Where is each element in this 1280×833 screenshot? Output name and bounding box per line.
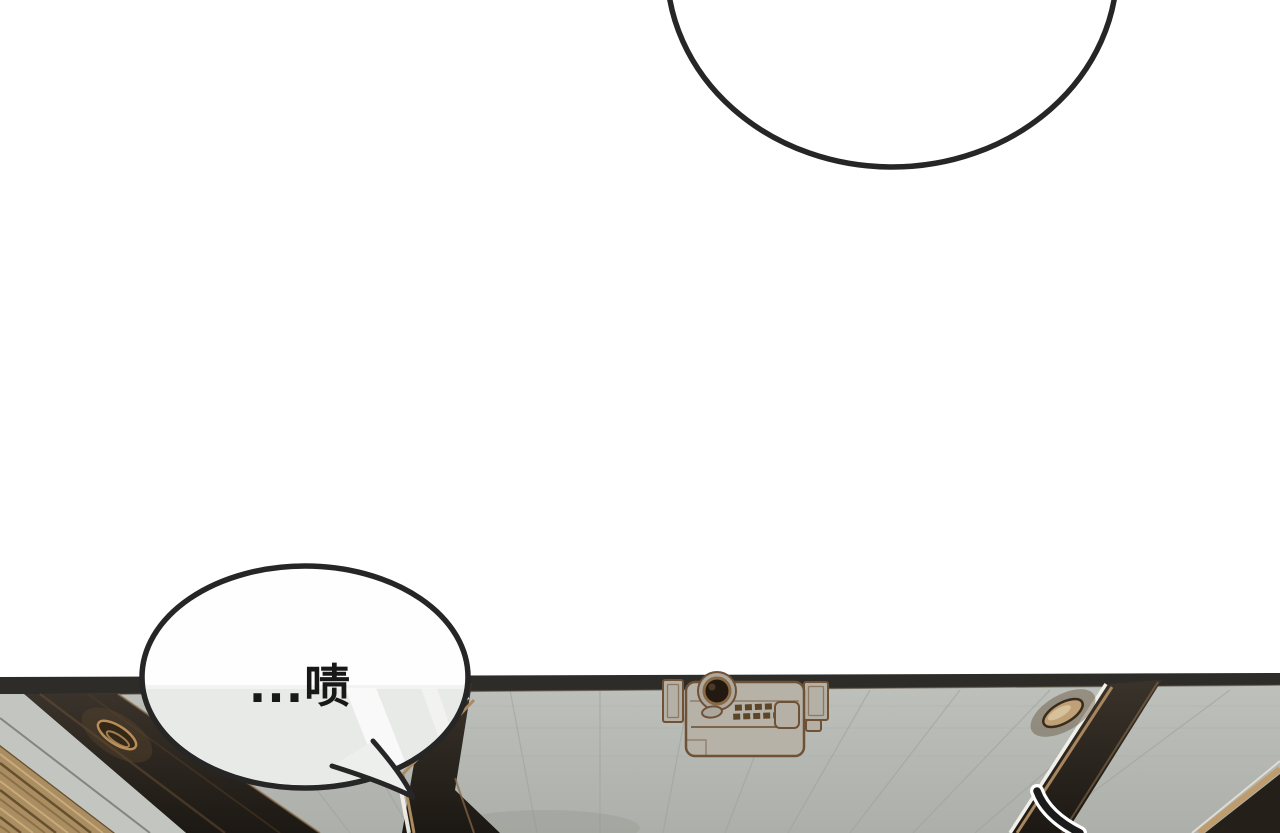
projector-panel-button bbox=[775, 702, 799, 728]
comic-panel: ...啧 bbox=[0, 0, 1280, 833]
partial-bubble-outline bbox=[667, 0, 1117, 167]
projector-bracket-right bbox=[804, 682, 828, 720]
projector-lens bbox=[704, 678, 730, 704]
projector-bracket-left bbox=[663, 680, 683, 722]
speech-bubble-text: ...啧 bbox=[170, 656, 430, 716]
partial-speech-bubble bbox=[650, 0, 1150, 185]
ceiling-projector bbox=[663, 672, 828, 756]
